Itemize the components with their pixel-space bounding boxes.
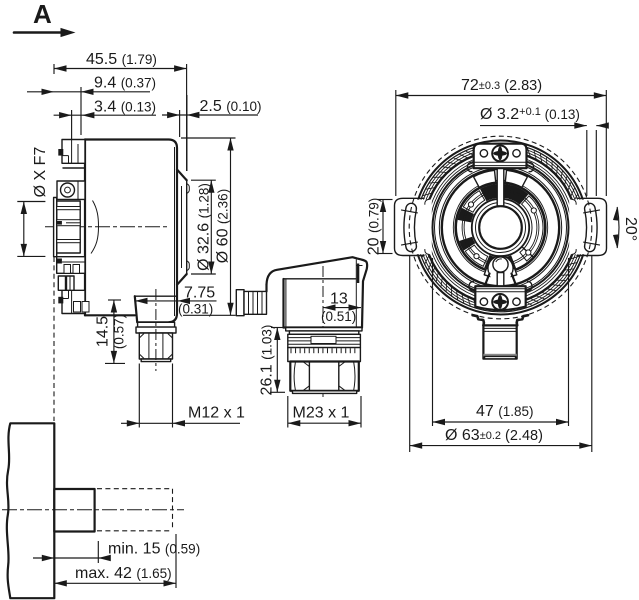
svg-text:20 (0.79): 20 (0.79) (366, 198, 383, 256)
svg-text:(0.57): (0.57) (112, 314, 127, 349)
svg-text:(0.51): (0.51) (321, 309, 356, 324)
svg-text:20°: 20° (622, 217, 639, 241)
svg-text:Ø 32.6 (1.28): Ø 32.6 (1.28) (196, 183, 213, 271)
svg-text:26.1 (1.03): 26.1 (1.03) (259, 325, 276, 396)
svg-text:2.5 (0.10): 2.5 (0.10) (200, 98, 262, 115)
svg-text:13: 13 (330, 291, 348, 308)
svg-text:7.75: 7.75 (184, 285, 215, 302)
svg-text:Ø X F7: Ø X F7 (32, 147, 49, 198)
svg-text:14.5: 14.5 (95, 316, 112, 347)
svg-text:(0.31): (0.31) (178, 302, 213, 317)
svg-text:3.4 (0.13): 3.4 (0.13) (94, 99, 156, 116)
svg-text:min. 15 (0.59): min. 15 (0.59) (108, 541, 200, 558)
svg-text:M23 x 1: M23 x 1 (293, 405, 350, 422)
svg-text:A: A (33, 0, 52, 29)
svg-text:45.5 (1.79): 45.5 (1.79) (86, 51, 157, 68)
svg-text:Ø 60 (2.36): Ø 60 (2.36) (215, 189, 232, 263)
svg-text:Ø 63±0.2 (2.48): Ø 63±0.2 (2.48) (445, 427, 543, 444)
svg-text:72±0.3 (2.83): 72±0.3 (2.83) (461, 77, 542, 94)
svg-text:max. 42 (1.65): max. 42 (1.65) (75, 565, 172, 582)
svg-text:9.4 (0.37): 9.4 (0.37) (94, 75, 156, 92)
svg-text:M12 x 1: M12 x 1 (188, 405, 245, 422)
svg-text:47 (1.85): 47 (1.85) (476, 403, 534, 420)
